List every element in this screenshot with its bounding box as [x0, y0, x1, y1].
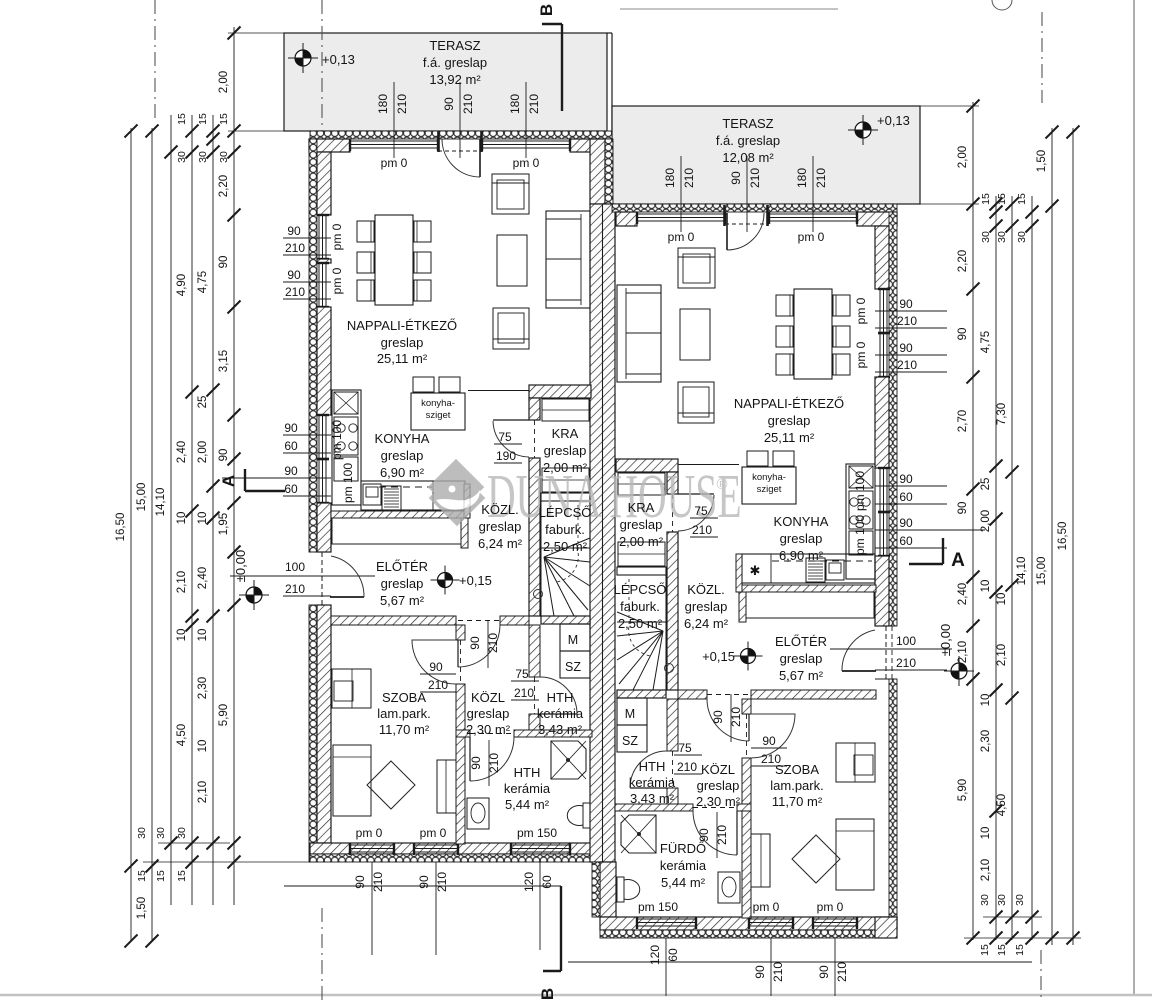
svg-text:30: 30 [136, 827, 148, 839]
svg-text:90: 90 [468, 636, 482, 650]
svg-text:210: 210 [692, 523, 712, 537]
svg-text:2,10: 2,10 [980, 859, 992, 881]
svg-text:90: 90 [697, 828, 711, 842]
svg-text:30: 30 [176, 827, 188, 839]
svg-text:SZ: SZ [622, 734, 638, 748]
svg-text:100: 100 [896, 634, 916, 648]
svg-text:1,50: 1,50 [1036, 150, 1048, 172]
svg-text:DUNA HOUSE: DUNA HOUSE [487, 463, 742, 531]
svg-text:2,30: 2,30 [980, 730, 992, 752]
svg-text:konyha-: konyha- [421, 398, 455, 409]
svg-text:10: 10 [980, 580, 992, 593]
svg-text:kerámia: kerámia [504, 781, 551, 796]
svg-text:greslap: greslap [685, 599, 728, 614]
svg-text:11,70 m²: 11,70 m² [772, 794, 823, 809]
svg-text:10: 10 [980, 827, 992, 840]
svg-text:10: 10 [176, 629, 188, 642]
svg-text:B: B [538, 988, 557, 1000]
svg-text:4,75: 4,75 [980, 331, 992, 353]
svg-text:25,11 m²: 25,11 m² [764, 430, 815, 445]
svg-text:60: 60 [284, 439, 298, 453]
svg-text:ELŐTÉR: ELŐTÉR [775, 634, 827, 649]
svg-text:greslap: greslap [544, 443, 587, 458]
svg-text:greslap: greslap [381, 576, 424, 591]
svg-text:16,50: 16,50 [115, 513, 127, 542]
svg-text:4,50: 4,50 [176, 724, 188, 746]
svg-text:210: 210 [835, 962, 849, 982]
svg-text:210: 210 [761, 752, 781, 766]
svg-text:pm 100: pm 100 [853, 471, 867, 511]
svg-text:3,43 m²: 3,43 m² [538, 722, 583, 737]
svg-text:4,90: 4,90 [176, 274, 188, 296]
svg-text:30: 30 [1014, 894, 1026, 906]
svg-text:210: 210 [285, 285, 305, 299]
svg-text:pm 0: pm 0 [356, 826, 383, 840]
svg-text:greslap: greslap [780, 651, 823, 666]
svg-text:25: 25 [197, 396, 209, 409]
svg-text:faburk.: faburk. [545, 522, 585, 537]
svg-text:®: ® [716, 476, 727, 493]
svg-text:TERASZ: TERASZ [722, 116, 773, 131]
svg-text:6,90 m²: 6,90 m² [779, 548, 824, 563]
svg-text:30: 30 [980, 231, 992, 243]
svg-text:B: B [537, 4, 556, 16]
svg-text:SZOBA: SZOBA [775, 762, 819, 777]
svg-text:60: 60 [899, 534, 913, 548]
svg-text:11,70 m²: 11,70 m² [379, 722, 430, 737]
svg-text:pm 0: pm 0 [381, 156, 408, 170]
svg-text:HTH: HTH [639, 759, 666, 774]
svg-text:pm 100: pm 100 [853, 515, 867, 555]
svg-text:30: 30 [218, 151, 230, 163]
svg-text:15: 15 [996, 944, 1008, 956]
svg-text:A: A [219, 475, 238, 487]
svg-text:f.á. greslap: f.á. greslap [423, 55, 487, 70]
svg-text:10: 10 [996, 593, 1008, 606]
svg-text:90: 90 [218, 449, 230, 462]
svg-text:pm 0: pm 0 [513, 156, 540, 170]
svg-text:5,90: 5,90 [218, 704, 230, 726]
svg-text:90: 90 [353, 875, 367, 889]
svg-text:2,30: 2,30 [197, 677, 209, 699]
svg-text:5,44 m²: 5,44 m² [661, 875, 706, 890]
svg-text:5,90: 5,90 [957, 779, 969, 801]
svg-text:greslap: greslap [479, 519, 522, 534]
svg-text:14,10: 14,10 [1016, 557, 1028, 586]
svg-text:10: 10 [197, 629, 209, 642]
svg-text:90: 90 [729, 171, 743, 185]
svg-text:25,11 m²: 25,11 m² [377, 351, 428, 366]
svg-text:pm 0: pm 0 [420, 826, 447, 840]
svg-text:✱: ✱ [750, 563, 761, 578]
svg-text:NAPPALI-ÉTKEZŐ: NAPPALI-ÉTKEZŐ [347, 318, 457, 333]
svg-text:210: 210 [677, 760, 697, 774]
svg-text:30: 30 [979, 894, 991, 906]
svg-text:10: 10 [197, 740, 209, 753]
svg-text:5,67 m²: 5,67 m² [779, 668, 824, 683]
svg-text:210: 210 [435, 872, 449, 892]
svg-text:30: 30 [996, 894, 1008, 906]
svg-text:KONYHA: KONYHA [375, 431, 430, 446]
svg-text:15: 15 [996, 193, 1008, 205]
svg-text:15: 15 [136, 870, 148, 882]
svg-text:210: 210 [682, 168, 696, 188]
svg-text:FÜRDŐ: FÜRDŐ [660, 841, 706, 856]
svg-text:15: 15 [155, 870, 167, 882]
svg-text:greslap: greslap [467, 706, 510, 721]
svg-text:30: 30 [176, 151, 188, 163]
svg-text:A: A [951, 550, 965, 571]
svg-text:75: 75 [694, 504, 708, 518]
svg-text:1,50: 1,50 [136, 897, 148, 919]
svg-text:pm 150: pm 150 [517, 826, 557, 840]
svg-text:M: M [625, 707, 635, 721]
svg-text:75: 75 [678, 741, 692, 755]
svg-text:90: 90 [711, 710, 725, 724]
svg-text:100: 100 [285, 560, 305, 574]
svg-text:lam.park.: lam.park. [377, 706, 430, 721]
svg-text:sziget: sziget [757, 484, 782, 495]
svg-text:SZOBA: SZOBA [382, 690, 426, 705]
svg-text:60: 60 [284, 482, 298, 496]
svg-text:210: 210 [371, 872, 385, 892]
svg-text:2,30 m²: 2,30 m² [696, 794, 741, 809]
svg-text:greslap: greslap [381, 335, 424, 350]
svg-text:90: 90 [287, 268, 301, 282]
svg-text:HTH: HTH [514, 765, 541, 780]
svg-text:±0,00: ±0,00 [233, 550, 248, 582]
svg-text:90: 90 [899, 297, 913, 311]
svg-text:210: 210 [748, 168, 762, 188]
svg-text:180: 180 [663, 168, 677, 188]
svg-text:3,15: 3,15 [218, 350, 230, 372]
svg-text:14,10: 14,10 [155, 488, 167, 517]
svg-text:190: 190 [496, 449, 516, 463]
svg-text:210: 210 [527, 94, 541, 114]
svg-text:15: 15 [980, 193, 992, 205]
svg-text:ELŐTÉR: ELŐTÉR [376, 559, 428, 574]
svg-text:15,00: 15,00 [136, 483, 148, 512]
svg-text:pm 0: pm 0 [330, 267, 344, 294]
svg-text:7,30: 7,30 [996, 403, 1008, 425]
svg-text:90: 90 [957, 502, 969, 515]
svg-text:210: 210 [395, 94, 409, 114]
svg-text:kerámia: kerámia [660, 858, 707, 873]
svg-text:2,00: 2,00 [218, 71, 230, 93]
svg-text:180: 180 [508, 94, 522, 114]
svg-text:75: 75 [498, 430, 512, 444]
svg-text:KRA: KRA [628, 500, 655, 515]
svg-text:2,00: 2,00 [957, 146, 969, 168]
svg-text:15: 15 [176, 870, 188, 882]
svg-text:sziget: sziget [426, 410, 451, 421]
svg-text:90: 90 [417, 875, 431, 889]
svg-text:+0,15: +0,15 [702, 649, 735, 664]
svg-text:15: 15 [1016, 193, 1028, 205]
svg-text:±0,00: ±0,00 [938, 624, 953, 656]
svg-text:pm 0: pm 0 [330, 223, 344, 250]
svg-text:2,30 m²: 2,30 m² [466, 722, 511, 737]
svg-text:10: 10 [197, 512, 209, 525]
svg-text:90: 90 [287, 224, 301, 238]
svg-text:greslap: greslap [697, 778, 740, 793]
svg-text:2,00: 2,00 [980, 510, 992, 532]
svg-text:90: 90 [469, 756, 483, 770]
svg-text:pm 0: pm 0 [854, 297, 868, 324]
svg-text:2,00 m²: 2,00 m² [543, 460, 588, 475]
svg-text:120: 120 [648, 945, 662, 965]
svg-text:12,08 m²: 12,08 m² [722, 150, 774, 165]
svg-text:faburk.: faburk. [620, 599, 660, 614]
svg-text:90: 90 [753, 965, 767, 979]
svg-text:90: 90 [899, 516, 913, 530]
svg-text:2,40: 2,40 [197, 567, 209, 589]
svg-text:2,70: 2,70 [957, 410, 969, 432]
svg-text:180: 180 [376, 94, 390, 114]
svg-text:90: 90 [284, 464, 298, 478]
svg-text:90: 90 [817, 965, 831, 979]
svg-text:13,92 m²: 13,92 m² [429, 72, 481, 87]
svg-text:210: 210 [814, 168, 828, 188]
svg-text:4,75: 4,75 [197, 271, 209, 293]
svg-text:kerámia: kerámia [537, 706, 584, 721]
svg-text:2,40: 2,40 [176, 441, 188, 463]
svg-text:60: 60 [899, 490, 913, 504]
svg-text:2,10: 2,10 [197, 781, 209, 803]
svg-text:210: 210 [285, 582, 305, 596]
svg-text:210: 210 [514, 686, 534, 700]
svg-text:15: 15 [979, 944, 991, 956]
svg-text:greslap: greslap [381, 448, 424, 463]
svg-text:+0,13: +0,13 [877, 113, 910, 128]
svg-text:5,67 m²: 5,67 m² [380, 593, 425, 608]
svg-text:KÖZL.: KÖZL. [481, 502, 519, 517]
svg-text:210: 210 [897, 314, 917, 328]
svg-text:25: 25 [980, 478, 992, 491]
svg-text:10: 10 [176, 512, 188, 525]
svg-text:pm 0: pm 0 [854, 341, 868, 368]
svg-text:2,10: 2,10 [176, 571, 188, 593]
svg-text:90: 90 [442, 97, 456, 111]
svg-text:2,10: 2,10 [996, 644, 1008, 666]
svg-text:6,24 m²: 6,24 m² [684, 616, 729, 631]
svg-text:pm 100: pm 100 [330, 420, 344, 460]
svg-text:pm 0: pm 0 [753, 900, 780, 914]
svg-text:KONYHA: KONYHA [774, 514, 829, 529]
svg-text:2,10: 2,10 [957, 641, 969, 663]
svg-text:5,44 m²: 5,44 m² [505, 797, 550, 812]
svg-text:210: 210 [428, 678, 448, 692]
svg-text:15: 15 [197, 113, 209, 125]
svg-text:15: 15 [176, 113, 188, 125]
svg-text:6,90 m²: 6,90 m² [380, 465, 425, 480]
svg-text:f.á. greslap: f.á. greslap [716, 133, 780, 148]
svg-text:16,50: 16,50 [1057, 522, 1069, 551]
svg-text:+0,13: +0,13 [322, 52, 355, 67]
svg-text:210: 210 [896, 656, 916, 670]
svg-text:3,43 m²: 3,43 m² [630, 791, 675, 806]
svg-text:60: 60 [540, 875, 554, 889]
svg-text:pm 0: pm 0 [798, 230, 825, 244]
svg-text:1,95: 1,95 [218, 513, 230, 535]
svg-text:90: 90 [218, 256, 230, 269]
svg-text:210: 210 [897, 358, 917, 372]
svg-text:greslap: greslap [620, 517, 663, 532]
svg-text:75: 75 [515, 667, 529, 681]
svg-text:konyha-: konyha- [752, 472, 786, 483]
svg-text:NAPPALI-ÉTKEZŐ: NAPPALI-ÉTKEZŐ [734, 396, 844, 411]
svg-text:KRA: KRA [552, 426, 579, 441]
svg-text:+0,15: +0,15 [459, 573, 492, 588]
svg-text:pm 150: pm 150 [638, 900, 678, 914]
svg-text:210: 210 [285, 241, 305, 255]
svg-text:TERASZ: TERASZ [429, 38, 480, 53]
svg-text:2,00: 2,00 [197, 441, 209, 463]
svg-text:4,50: 4,50 [996, 794, 1008, 816]
svg-text:SZ: SZ [565, 660, 581, 674]
svg-text:2,50 m²: 2,50 m² [618, 616, 663, 631]
svg-text:90: 90 [957, 328, 969, 341]
svg-text:10: 10 [980, 694, 992, 707]
svg-text:kerámia: kerámia [629, 775, 676, 790]
svg-text:180: 180 [795, 168, 809, 188]
svg-text:greslap: greslap [768, 413, 811, 428]
svg-text:60: 60 [666, 948, 680, 962]
svg-text:30: 30 [996, 231, 1008, 243]
svg-text:LÉPCSŐ: LÉPCSŐ [539, 505, 592, 520]
svg-text:6,24 m²: 6,24 m² [478, 536, 523, 551]
svg-text:LÉPCSŐ: LÉPCSŐ [614, 582, 667, 597]
svg-text:HTH: HTH [547, 690, 574, 705]
svg-text:greslap: greslap [780, 531, 823, 546]
svg-text:2,00 m²: 2,00 m² [619, 534, 664, 549]
svg-text:2,50 m²: 2,50 m² [543, 539, 588, 554]
svg-text:KÖZL: KÖZL [471, 690, 505, 705]
svg-text:2,20: 2,20 [218, 175, 230, 197]
svg-text:210: 210 [461, 94, 475, 114]
svg-text:2,40: 2,40 [957, 583, 969, 605]
svg-text:90: 90 [899, 341, 913, 355]
svg-text:120: 120 [522, 872, 536, 892]
svg-text:15,00: 15,00 [1036, 557, 1048, 586]
svg-text:90: 90 [899, 472, 913, 486]
svg-text:M: M [568, 633, 578, 647]
svg-text:30: 30 [155, 827, 167, 839]
svg-text:pm 0: pm 0 [817, 900, 844, 914]
svg-text:KÖZL.: KÖZL. [687, 582, 725, 597]
svg-text:30: 30 [1016, 231, 1028, 243]
svg-text:90: 90 [429, 660, 443, 674]
svg-text:15: 15 [1014, 944, 1026, 956]
svg-text:90: 90 [762, 734, 776, 748]
svg-text:pm 0: pm 0 [668, 230, 695, 244]
svg-text:210: 210 [771, 962, 785, 982]
svg-text:pm 100: pm 100 [341, 463, 355, 503]
svg-text:lam.park.: lam.park. [770, 778, 823, 793]
svg-text:2,20: 2,20 [957, 250, 969, 272]
svg-text:30: 30 [197, 151, 209, 163]
svg-text:15: 15 [218, 113, 230, 125]
svg-text:90: 90 [284, 421, 298, 435]
svg-text:KÖZL: KÖZL [701, 762, 735, 777]
